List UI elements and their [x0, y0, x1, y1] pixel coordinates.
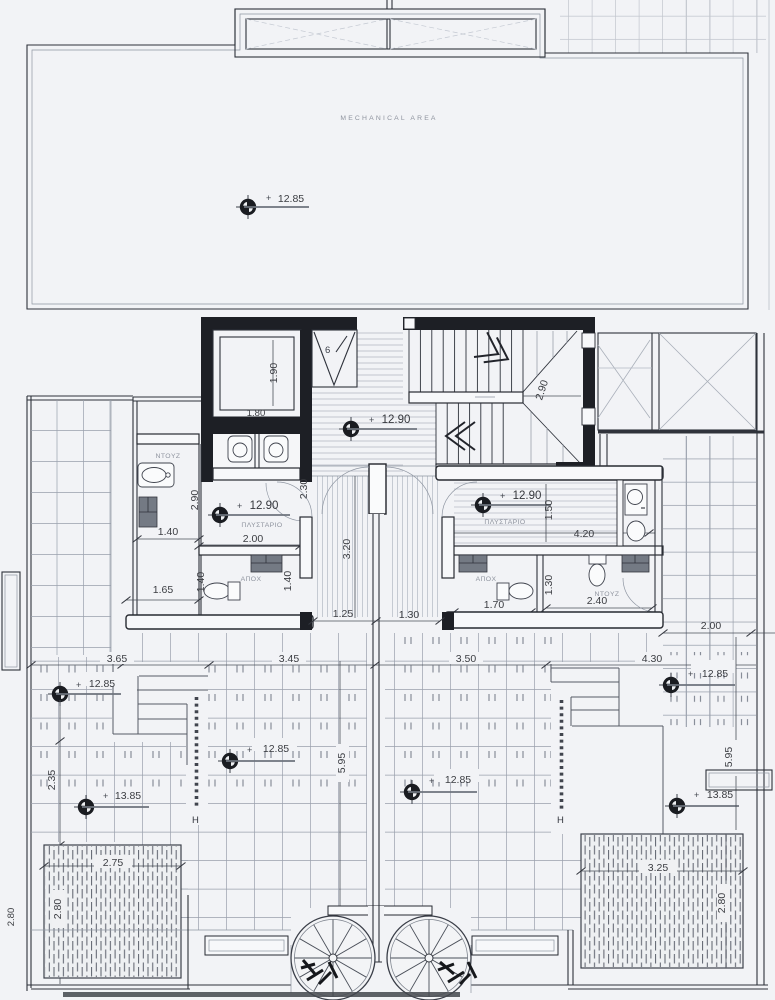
- svg-text:+: +: [694, 790, 699, 800]
- svg-text:3.45: 3.45: [279, 653, 300, 665]
- svg-text:MECHANICAL AREA: MECHANICAL AREA: [340, 115, 437, 122]
- svg-text:+: +: [103, 791, 108, 801]
- svg-text:12.85: 12.85: [702, 668, 728, 680]
- svg-text:1.40: 1.40: [195, 572, 207, 593]
- svg-text:1.50: 1.50: [543, 500, 555, 521]
- svg-text:12.90: 12.90: [513, 490, 542, 502]
- svg-text:1.40: 1.40: [282, 571, 294, 592]
- svg-text:1.25: 1.25: [333, 608, 354, 620]
- svg-text:1.30: 1.30: [399, 609, 420, 621]
- svg-text:5.95: 5.95: [723, 747, 735, 768]
- svg-text:13.85: 13.85: [707, 789, 733, 801]
- svg-text:3.65: 3.65: [107, 653, 128, 665]
- svg-text:2.00: 2.00: [701, 620, 722, 632]
- svg-text:12.85: 12.85: [89, 678, 115, 690]
- svg-text:3.25: 3.25: [648, 862, 669, 874]
- svg-text:+: +: [429, 776, 434, 786]
- svg-text:12.85: 12.85: [278, 193, 304, 205]
- svg-text:12.90: 12.90: [250, 500, 279, 512]
- svg-text:ΠΛΥΣΤΑΡΙΟ: ΠΛΥΣΤΑΡΙΟ: [241, 522, 282, 529]
- svg-text:+: +: [369, 415, 374, 425]
- svg-text:3.50: 3.50: [456, 653, 477, 665]
- svg-text:1.90: 1.90: [268, 363, 280, 384]
- svg-text:+: +: [500, 491, 505, 501]
- svg-text:2.00: 2.00: [243, 533, 264, 545]
- svg-text:1.65: 1.65: [153, 584, 174, 596]
- svg-text:+: +: [237, 501, 242, 511]
- svg-text:13.85: 13.85: [115, 790, 141, 802]
- svg-text:2.30: 2.30: [298, 479, 310, 500]
- svg-text:3.20: 3.20: [341, 539, 353, 560]
- svg-text:5.95: 5.95: [336, 753, 348, 774]
- svg-text:4.30: 4.30: [642, 653, 663, 665]
- svg-text:12.90: 12.90: [382, 414, 411, 426]
- svg-text:12.85: 12.85: [445, 774, 471, 786]
- svg-text:4.20: 4.20: [574, 528, 595, 540]
- svg-text:ΠΛΥΣΤΑΡΙΟ: ΠΛΥΣΤΑΡΙΟ: [484, 519, 525, 526]
- svg-text:NTOYZ: NTOYZ: [156, 453, 181, 460]
- svg-text:H: H: [557, 815, 564, 826]
- svg-text:2.80: 2.80: [6, 908, 17, 927]
- svg-text:+: +: [266, 193, 271, 203]
- svg-text:+: +: [76, 680, 81, 690]
- svg-text:ΑΠΟΧ: ΑΠΟΧ: [241, 576, 262, 583]
- svg-text:6: 6: [325, 345, 330, 356]
- svg-text:12.85: 12.85: [263, 743, 289, 755]
- svg-text:+: +: [688, 669, 693, 679]
- svg-text:H: H: [192, 815, 199, 826]
- svg-text:2.90: 2.90: [189, 490, 201, 511]
- svg-text:+: +: [247, 745, 252, 755]
- svg-text:1.30: 1.30: [543, 575, 555, 596]
- svg-text:2.80: 2.80: [52, 899, 64, 920]
- svg-text:2.80: 2.80: [716, 893, 728, 914]
- svg-text:ΑΠΟΧ: ΑΠΟΧ: [476, 576, 497, 583]
- svg-text:2.40: 2.40: [587, 595, 608, 607]
- svg-text:1.40: 1.40: [158, 526, 179, 538]
- svg-text:2.35: 2.35: [46, 770, 58, 791]
- svg-text:2.75: 2.75: [103, 857, 124, 869]
- svg-text:1.70: 1.70: [484, 599, 505, 611]
